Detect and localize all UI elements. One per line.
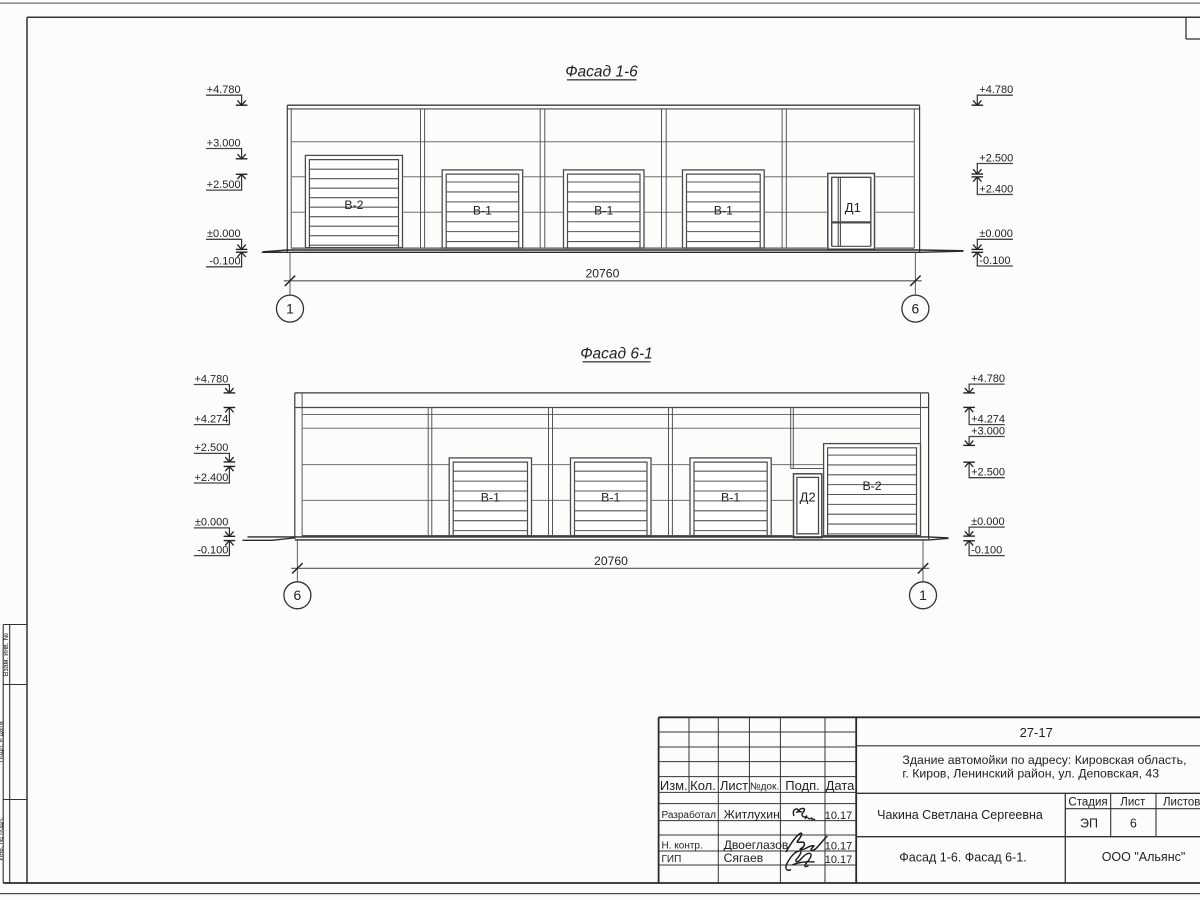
svg-text:1: 1 xyxy=(919,588,927,603)
svg-text:Дата: Дата xyxy=(826,778,856,793)
svg-text:Д2: Д2 xyxy=(800,490,816,505)
svg-text:6: 6 xyxy=(912,302,920,317)
svg-text:20760: 20760 xyxy=(585,266,619,280)
svg-text:+2.500: +2.500 xyxy=(979,152,1013,164)
svg-text:Лист: Лист xyxy=(720,778,748,793)
svg-text:г. Киров, Ленинский район, ул.: г. Киров, Ленинский район, ул. Деповская… xyxy=(902,767,1159,781)
svg-text:В-2: В-2 xyxy=(862,479,881,493)
svg-text:Подп.: Подп. xyxy=(785,778,820,793)
svg-text:Лист: Лист xyxy=(1120,797,1146,809)
svg-text:Листов: Листов xyxy=(1163,797,1200,809)
svg-text:27-17: 27-17 xyxy=(1020,725,1053,740)
svg-text:Д1: Д1 xyxy=(845,200,861,215)
svg-text:6: 6 xyxy=(294,588,302,603)
svg-text:+4.780: +4.780 xyxy=(194,373,228,385)
svg-text:Сягаев: Сягаев xyxy=(724,851,764,865)
svg-text:+2.500: +2.500 xyxy=(194,442,228,454)
svg-text:6: 6 xyxy=(1130,816,1137,830)
svg-text:-0.100: -0.100 xyxy=(197,544,228,556)
svg-text:-0.100: -0.100 xyxy=(971,544,1002,556)
svg-text:±0.000: ±0.000 xyxy=(195,517,229,529)
svg-text:±0.000: ±0.000 xyxy=(207,228,241,240)
svg-text:ЭП: ЭП xyxy=(1080,816,1098,830)
svg-text:+4.274: +4.274 xyxy=(194,413,228,425)
svg-text:ГИП: ГИП xyxy=(662,854,682,865)
svg-text:В-1: В-1 xyxy=(721,491,740,505)
svg-text:Фасад 1-6. Фасад 6-1.: Фасад 1-6. Фасад 6-1. xyxy=(899,851,1026,865)
svg-text:10.17: 10.17 xyxy=(825,810,853,822)
svg-text:+4.780: +4.780 xyxy=(979,84,1013,96)
svg-text:Н. контр.: Н. контр. xyxy=(662,841,703,852)
svg-text:Взам. инв. №: Взам. инв. № xyxy=(3,633,10,676)
svg-text:Здание автомойки по адресу: Ки: Здание автомойки по адресу: Кировская об… xyxy=(902,753,1186,767)
svg-text:+2.400: +2.400 xyxy=(979,183,1013,195)
svg-text:Двоеглазов: Двоеглазов xyxy=(724,838,789,852)
svg-text:+4.780: +4.780 xyxy=(207,84,241,96)
svg-text:Фасад 1-6: Фасад 1-6 xyxy=(565,64,638,81)
svg-text:10.17: 10.17 xyxy=(825,854,853,866)
svg-text:+3.000: +3.000 xyxy=(207,137,241,149)
svg-text:Кол.: Кол. xyxy=(690,778,716,793)
svg-text:10.17: 10.17 xyxy=(825,841,853,853)
svg-text:В-1: В-1 xyxy=(714,203,733,217)
svg-text:+4.780: +4.780 xyxy=(971,373,1005,385)
svg-text:В-1: В-1 xyxy=(601,491,620,505)
svg-text:±0.000: ±0.000 xyxy=(971,516,1005,528)
svg-text:Фасад 6-1: Фасад 6-1 xyxy=(580,345,653,362)
svg-text:±0.000: ±0.000 xyxy=(979,228,1013,240)
svg-text:20760: 20760 xyxy=(594,554,628,568)
svg-text:В-2: В-2 xyxy=(344,198,363,212)
svg-text:+2.400: +2.400 xyxy=(194,472,228,484)
svg-text:+3.000: +3.000 xyxy=(971,425,1005,437)
svg-text:В-1: В-1 xyxy=(473,203,492,217)
svg-text:+2.500: +2.500 xyxy=(971,467,1005,479)
svg-text:Житлухин: Житлухин xyxy=(724,807,780,821)
svg-text:Стадия: Стадия xyxy=(1068,797,1107,809)
svg-text:Инв. № подл.: Инв. № подл. xyxy=(0,817,5,861)
svg-text:+4.274: +4.274 xyxy=(971,413,1005,425)
svg-text:№док.: №док. xyxy=(750,782,779,793)
svg-text:Подп. и дата: Подп. и дата xyxy=(0,721,5,762)
svg-text:1: 1 xyxy=(286,302,294,317)
svg-text:В-1: В-1 xyxy=(481,491,500,505)
svg-text:Изм.: Изм. xyxy=(660,778,688,793)
svg-text:-0.100: -0.100 xyxy=(979,255,1010,267)
svg-text:-0.100: -0.100 xyxy=(209,256,240,268)
svg-text:Разработал: Разработал xyxy=(662,809,717,821)
svg-text:В-1: В-1 xyxy=(594,203,613,217)
svg-text:+2.500: +2.500 xyxy=(207,179,241,191)
svg-text:ООО "Альянс": ООО "Альянс" xyxy=(1102,850,1186,864)
svg-text:Чакина Светлана Сергеевна: Чакина Светлана Сергеевна xyxy=(877,808,1043,822)
